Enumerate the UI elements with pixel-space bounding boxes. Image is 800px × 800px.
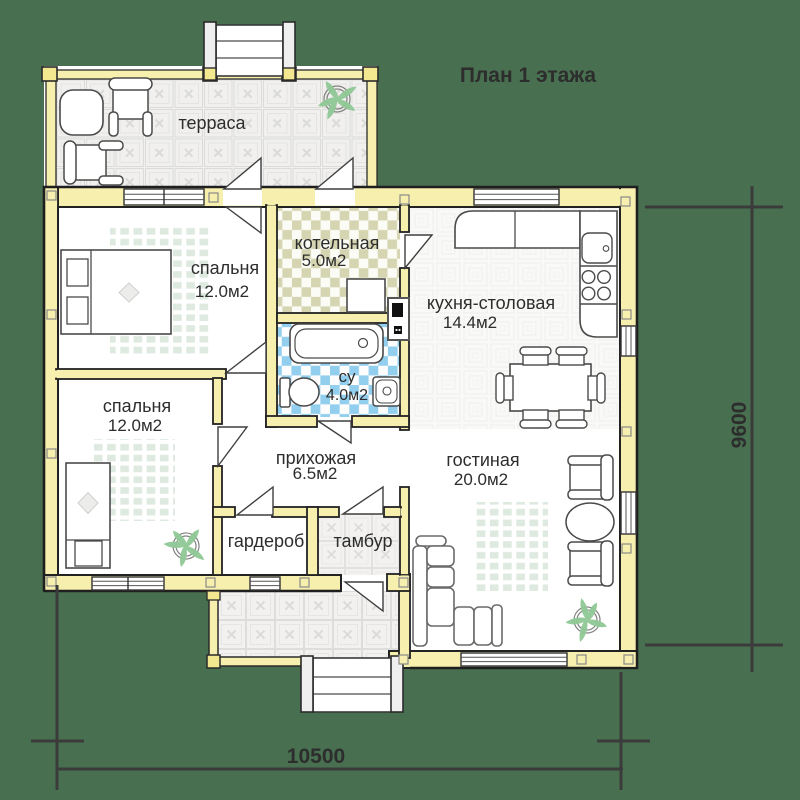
svg-text:терраса: терраса [178,113,246,133]
svg-text:тамбур: тамбур [334,531,393,551]
svg-text:6.5м2: 6.5м2 [293,464,338,483]
svg-text:4.0м2: 4.0м2 [326,387,368,404]
svg-text:9600: 9600 [728,402,751,449]
svg-text:спальня: спальня [191,258,259,278]
svg-text:20.0м2: 20.0м2 [454,470,508,489]
svg-text:кухня-столовая: кухня-столовая [427,293,555,313]
svg-text:котельная: котельная [295,233,380,253]
svg-text:14.4м2: 14.4м2 [443,313,497,332]
svg-text:12.0м2: 12.0м2 [195,282,249,301]
svg-text:спальня: спальня [103,396,171,416]
svg-text:12.0м2: 12.0м2 [108,416,162,435]
svg-text:гардероб: гардероб [228,531,305,551]
svg-text:5.0м2: 5.0м2 [302,251,347,270]
svg-text:10500: 10500 [287,745,345,768]
svg-text:су: су [339,367,357,386]
svg-text:План 1 этажа: План 1 этажа [460,64,597,87]
svg-text:гостиная: гостиная [446,450,519,470]
